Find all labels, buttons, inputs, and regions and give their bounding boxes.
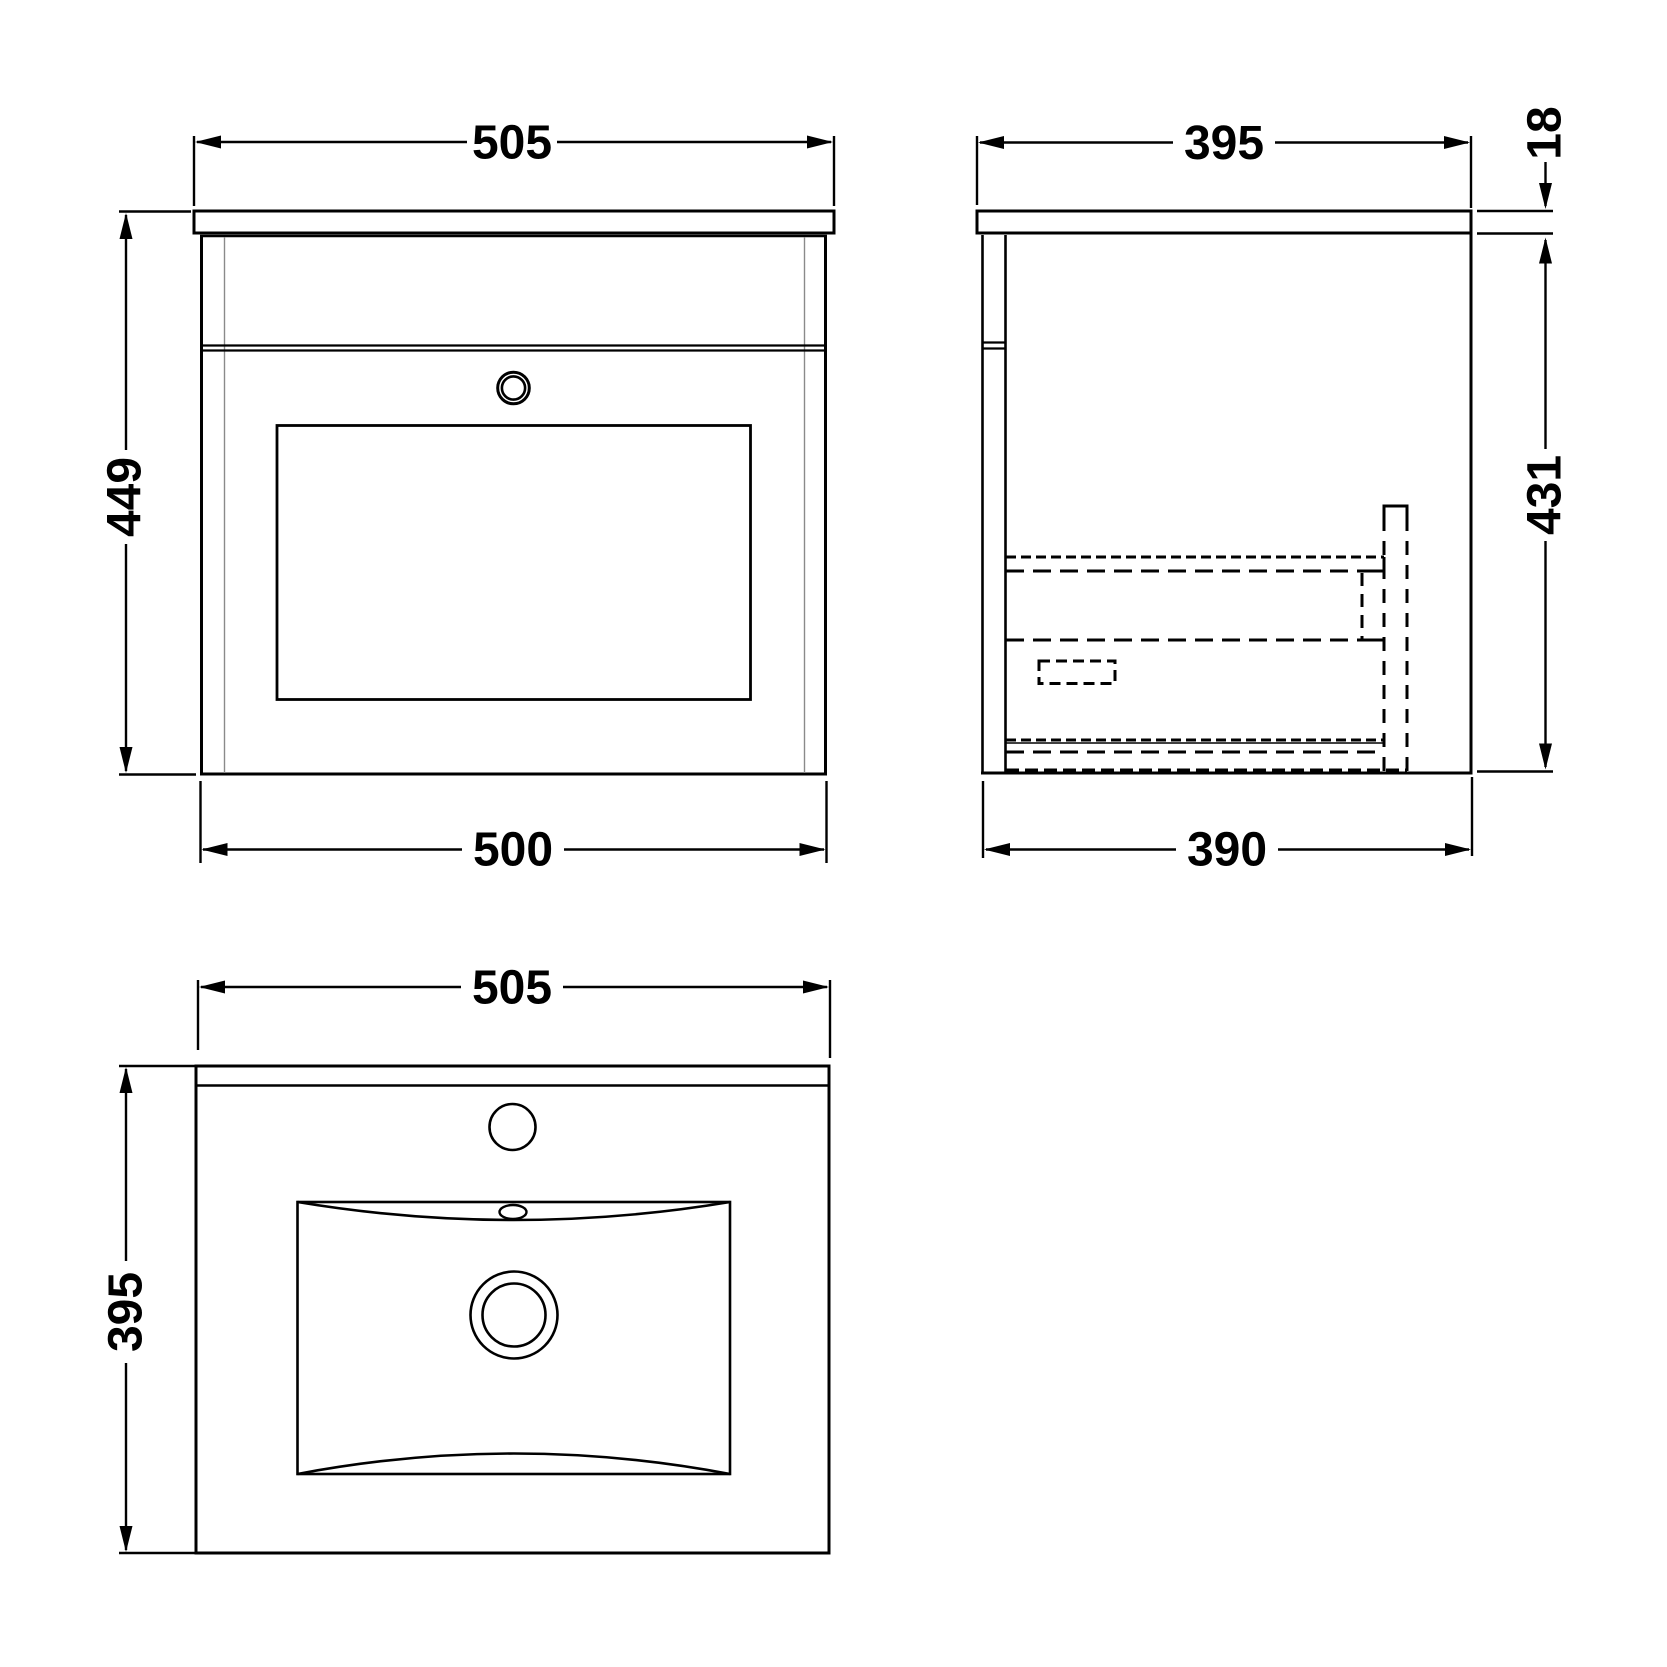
svg-text:395: 395: [100, 1272, 153, 1352]
svg-text:500: 500: [473, 824, 553, 877]
svg-text:505: 505: [472, 117, 552, 170]
svg-text:18: 18: [1519, 106, 1572, 159]
svg-text:431: 431: [1519, 455, 1572, 535]
svg-text:390: 390: [1187, 824, 1267, 877]
svg-text:505: 505: [472, 962, 552, 1015]
svg-text:395: 395: [1184, 117, 1264, 170]
svg-text:449: 449: [99, 457, 152, 537]
